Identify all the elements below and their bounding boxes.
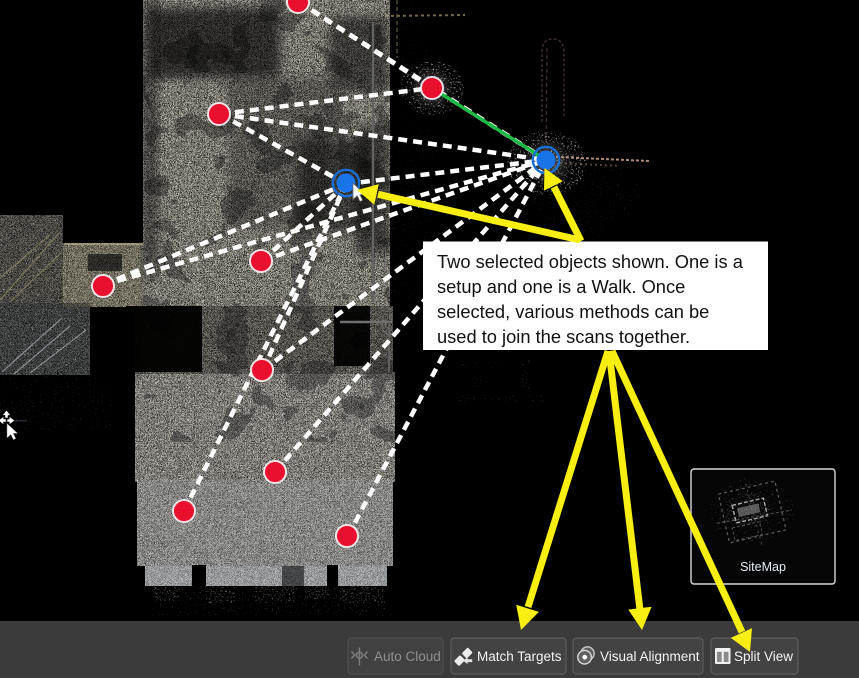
svg-text:setup and one is a Walk. Once: setup and one is a Walk. Once: [437, 276, 685, 297]
svg-text:SiteMap: SiteMap: [740, 560, 786, 574]
svg-text:Two selected objects shown. On: Two selected objects shown. One is a: [437, 251, 744, 272]
svg-text:Split View: Split View: [734, 649, 793, 664]
svg-text:Visual Alignment: Visual Alignment: [600, 649, 700, 664]
svg-text:Auto Cloud: Auto Cloud: [374, 649, 441, 664]
svg-text:used to join the scans togethe: used to join the scans together.: [437, 326, 690, 347]
svg-text:selected, various methods can: selected, various methods can be: [437, 301, 709, 322]
svg-text:Match Targets: Match Targets: [477, 649, 562, 664]
